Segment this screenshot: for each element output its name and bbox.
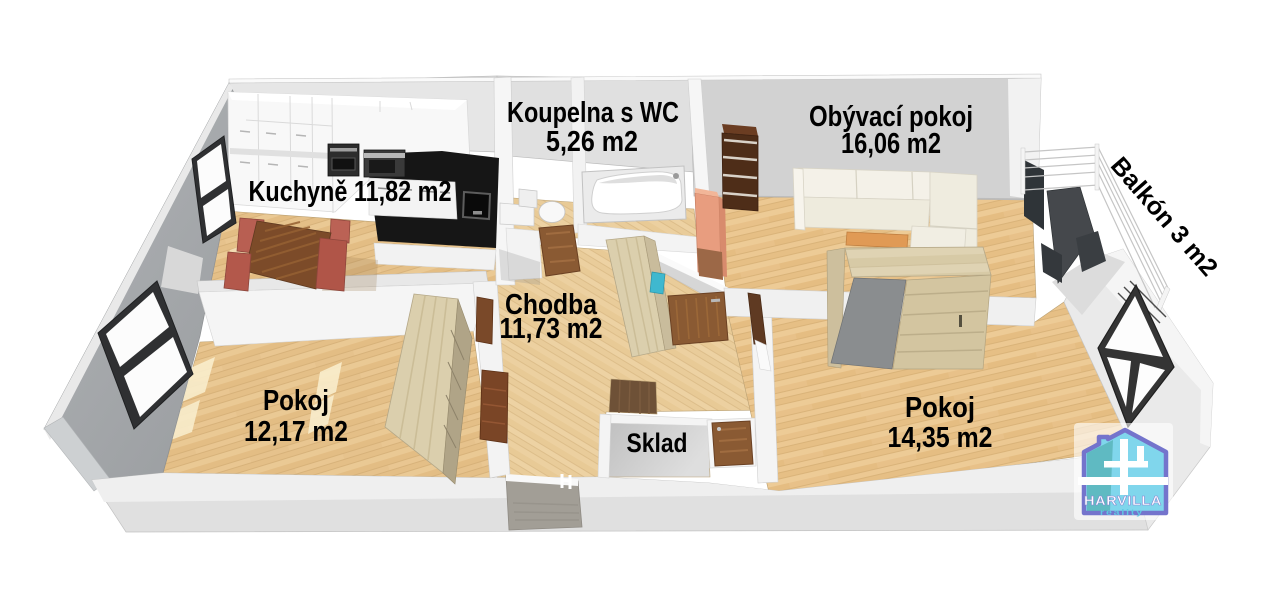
svg-text:11,73 m2: 11,73 m2 [500,313,603,345]
svg-text:14,35 m2: 14,35 m2 [888,422,993,454]
svg-text:Sklad: Sklad [627,428,688,458]
svg-text:Pokoj: Pokoj [905,392,975,424]
svg-text:Kuchyně 11,82 m2: Kuchyně 11,82 m2 [249,176,452,208]
svg-text:16,06 m2: 16,06 m2 [841,128,941,160]
svg-text:5,26 m2: 5,26 m2 [546,126,638,158]
svg-text:12,17 m2: 12,17 m2 [244,416,348,448]
svg-text:reality: reality [1100,507,1144,517]
svg-text:Pokoj: Pokoj [263,385,329,417]
svg-text:Koupelna s WC: Koupelna s WC [507,97,679,129]
svg-text:HARVILLA: HARVILLA [1084,494,1162,508]
